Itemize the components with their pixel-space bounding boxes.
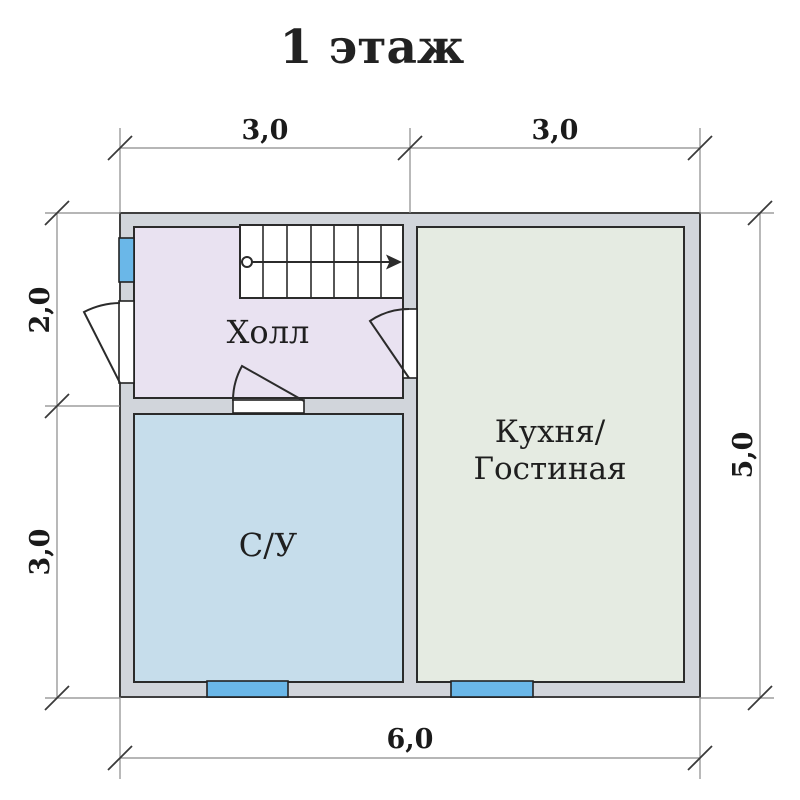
window-kitchen-icon — [451, 681, 533, 697]
door-kitchen-opening — [403, 309, 417, 378]
page-title: 1 этаж — [212, 18, 532, 76]
stairs-icon — [240, 225, 403, 298]
dimension-right: 5,0 — [716, 422, 770, 488]
room-label-kitchen-line2: Гостиная — [473, 451, 626, 488]
door-bathroom-opening — [233, 400, 304, 413]
dimension-left-upper: 2,0 — [13, 277, 67, 343]
dimension-left-lower: 3,0 — [13, 519, 67, 585]
room-label-kitchen: Кухня/ Гостиная — [445, 413, 655, 489]
dimension-top-right: 3,0 — [505, 110, 605, 150]
room-label-bathroom: С/У — [168, 525, 368, 565]
room-label-kitchen-line1: Кухня/ — [495, 414, 605, 451]
window-bathroom-icon — [207, 681, 288, 697]
door-entrance-opening — [119, 301, 134, 383]
window-left-icon — [119, 238, 134, 282]
floor-plan-page: 1 этаж 3,0 3,0 2,0 3,0 5,0 6,0 Холл С/У … — [0, 0, 800, 800]
dimension-top-left: 3,0 — [215, 110, 315, 150]
dimension-bottom: 6,0 — [360, 716, 460, 762]
door-entrance-swing-icon — [84, 303, 120, 383]
floor-plan-drawing — [0, 0, 800, 800]
stairs-start-circle — [242, 257, 252, 267]
room-label-hall: Холл — [168, 312, 368, 352]
